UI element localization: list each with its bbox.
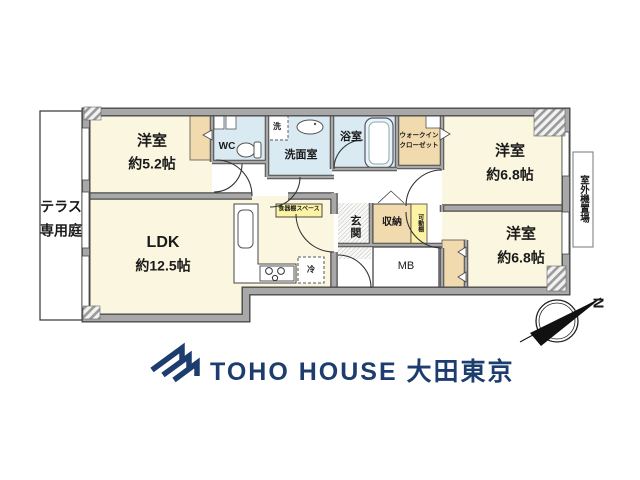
floor-plan-graphic bbox=[0, 0, 640, 480]
terrace-label-line2: 専用庭 bbox=[40, 222, 82, 240]
bedroom1-name: 洋室 bbox=[137, 133, 167, 152]
floorplan-page: テラス 専用庭 洋室 約5.2帖 LDK 約12.5帖 洋室 約6.8帖 洋室 … bbox=[0, 0, 640, 480]
dish-shelf-label: 食器棚スペース bbox=[278, 206, 319, 214]
storage-label: 収納 bbox=[382, 217, 402, 230]
wic-label-line1: ウォークイン bbox=[400, 132, 439, 140]
bedroom2-size: 約6.8帖 bbox=[486, 166, 533, 184]
ldk-name: LDK bbox=[147, 233, 180, 253]
washbasin bbox=[297, 120, 323, 134]
bedroom2-name: 洋室 bbox=[495, 143, 525, 162]
outdoor-unit-label: 室外機置場 bbox=[577, 175, 589, 223]
brand-logo-icon bbox=[152, 348, 197, 380]
mb-label: MB bbox=[398, 260, 415, 274]
wic-label-line2: クローゼット bbox=[400, 142, 439, 150]
movable-shelf-label: 可動棚 bbox=[415, 214, 423, 232]
washroom-label: 洗面室 bbox=[285, 149, 318, 163]
bath-label: 浴室 bbox=[340, 131, 362, 145]
ldk-size: 約12.5帖 bbox=[135, 257, 190, 275]
fridge-label: 冷 bbox=[307, 265, 315, 275]
kitchen-sink bbox=[238, 210, 253, 248]
toilet bbox=[237, 143, 255, 157]
genkan-label: 玄関 bbox=[347, 215, 361, 239]
bedroom3-closet bbox=[442, 240, 466, 290]
bedroom3-name: 洋室 bbox=[506, 226, 536, 245]
washer-pan bbox=[226, 116, 236, 129]
bedroom1-size: 約5.2帖 bbox=[128, 155, 175, 173]
wc-label: WC bbox=[219, 141, 236, 154]
brand-wordmark: TOHO HOUSE 大田東京 bbox=[210, 352, 515, 388]
washer-label: 洗 bbox=[273, 122, 281, 132]
bedroom3-size: 約6.8帖 bbox=[497, 249, 544, 267]
compass-north-label: N bbox=[588, 298, 607, 309]
terrace-label-line1: テラス bbox=[40, 198, 82, 216]
